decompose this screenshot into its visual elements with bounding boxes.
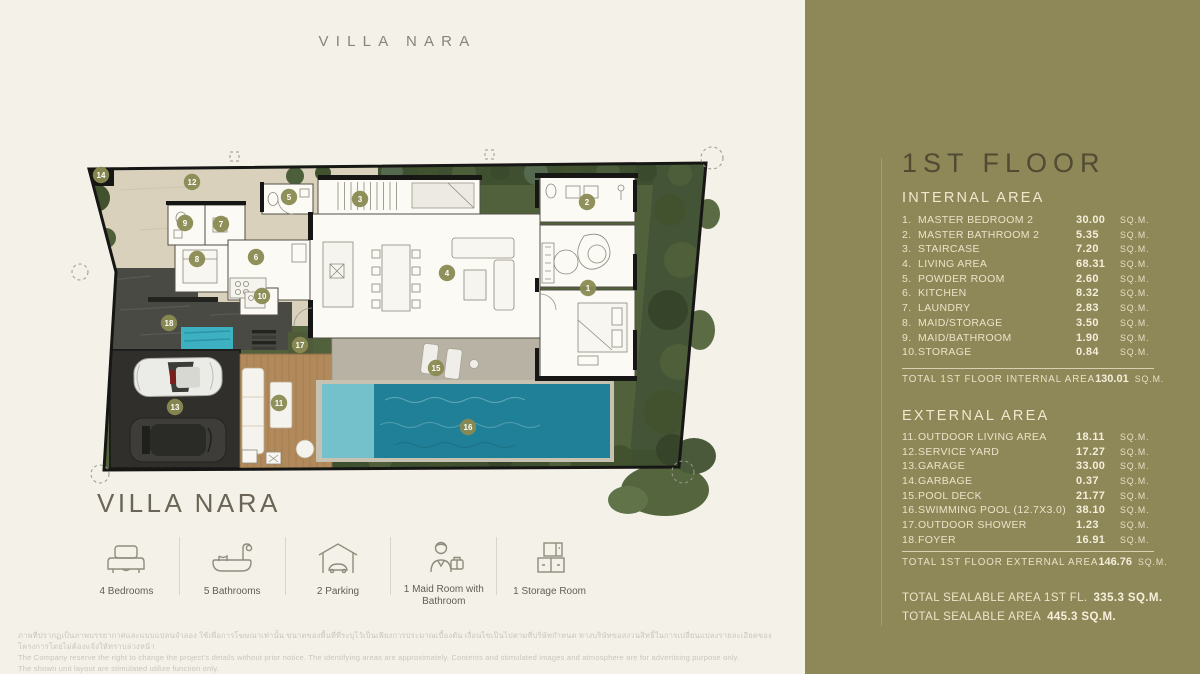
marker-number: 4 bbox=[445, 269, 450, 278]
feature-summary-row: 4 Bedrooms 5 Bathrooms 2 Parking bbox=[74, 533, 602, 605]
disclaimer-text: ภาพที่ปรากฏเป็นภาพบรรยากาศและแบบแปลนจำลอ… bbox=[18, 630, 778, 674]
marker-number: 2 bbox=[585, 198, 590, 207]
marker-number: 10 bbox=[258, 292, 267, 301]
marker-number: 8 bbox=[195, 255, 200, 264]
total-value: 130.01 bbox=[1095, 373, 1129, 385]
marker-number: 7 bbox=[219, 220, 224, 229]
internal-area-list: 1.MASTER BEDROOM 230.00SQ.M.2.MASTER BAT… bbox=[902, 214, 1154, 361]
bath-icon bbox=[209, 539, 255, 579]
floor-plan-illustration: 123456789101112131415161718 bbox=[80, 150, 730, 485]
feature-maid-room: 1 Maid Room with Bathroom bbox=[391, 533, 496, 605]
marker-number: 11 bbox=[275, 399, 284, 408]
white-car bbox=[134, 357, 223, 397]
area-row: 1.MASTER BEDROOM 230.00SQ.M. bbox=[902, 214, 1154, 229]
marker-number: 9 bbox=[183, 219, 188, 228]
marker-number: 16 bbox=[464, 423, 473, 432]
feature-bathrooms: 5 Bathrooms bbox=[180, 533, 285, 605]
area-summary-sidebar: 1ST FLOOR INTERNAL AREA 1.MASTER BEDROOM… bbox=[805, 0, 1200, 674]
feature-label: 5 Bathrooms bbox=[204, 586, 261, 598]
marker-number: 3 bbox=[358, 195, 363, 204]
plan-title: VILLA NARA bbox=[97, 488, 281, 519]
area-row: 7.LAUNDRY2.83SQ.M. bbox=[902, 302, 1154, 317]
area-row: 8.MAID/STORAGE3.50SQ.M. bbox=[902, 317, 1154, 332]
marker-number: 12 bbox=[188, 178, 197, 187]
external-area-heading: EXTERNAL AREA bbox=[902, 408, 1049, 424]
marker-number: 18 bbox=[165, 319, 174, 328]
total-value: 146.76 bbox=[1098, 556, 1132, 568]
area-row: 4.LIVING AREA68.31SQ.M. bbox=[902, 258, 1154, 273]
feature-label: 2 Parking bbox=[317, 586, 359, 598]
total-unit: SQ.M. bbox=[1138, 557, 1167, 567]
area-row: 13.GARAGE33.00SQ.M. bbox=[902, 460, 1154, 475]
total-label: TOTAL 1ST FLOOR INTERNAL AREA bbox=[902, 374, 1095, 385]
feature-label: 1 Storage Room bbox=[513, 586, 586, 598]
total-unit: SQ.M. bbox=[1135, 374, 1164, 384]
vertical-rule bbox=[881, 158, 882, 626]
internal-area-heading: INTERNAL AREA bbox=[902, 190, 1044, 206]
area-row: 6.KITCHEN8.32SQ.M. bbox=[902, 287, 1154, 302]
water-feature bbox=[181, 327, 233, 349]
marker-number: 6 bbox=[254, 253, 259, 262]
bed-icon bbox=[103, 539, 149, 579]
area-row: 14.GARBAGE0.37SQ.M. bbox=[902, 475, 1154, 490]
feature-bedrooms: 4 Bedrooms bbox=[74, 533, 179, 605]
pool-deck bbox=[332, 336, 558, 382]
feature-label: 4 Bedrooms bbox=[99, 586, 153, 598]
marker-number: 1 bbox=[586, 284, 591, 293]
disclaimer-line-english: The Company reserve the right to change … bbox=[18, 652, 778, 663]
area-row: 2.MASTER BATHROOM 25.35SQ.M. bbox=[902, 229, 1154, 244]
feature-parking: 2 Parking bbox=[286, 533, 391, 605]
area-row: 5.POWDER ROOM2.60SQ.M. bbox=[902, 273, 1154, 288]
disclaimer-line-thai: ภาพที่ปรากฏเป็นภาพบรรยากาศและแบบแปลนจำลอ… bbox=[18, 630, 778, 652]
dark-car bbox=[130, 418, 226, 462]
maid-icon bbox=[421, 539, 467, 577]
area-row: 16.SWIMMING POOL (12.7X3.0)38.10SQ.M. bbox=[902, 504, 1154, 519]
internal-total-line: TOTAL 1ST FLOOR INTERNAL AREA 130.01 SQ.… bbox=[902, 368, 1154, 385]
sealable-label: TOTAL SEALABLE AREA bbox=[902, 611, 1041, 623]
floor-title: 1ST FLOOR bbox=[902, 148, 1106, 179]
marker-number: 14 bbox=[97, 171, 106, 180]
marker-number: 13 bbox=[171, 403, 180, 412]
area-row: 11.OUTDOOR LIVING AREA18.11SQ.M. bbox=[902, 431, 1154, 446]
sealable-line: TOTAL SEALABLE AREA 445.3 SQ.M. bbox=[902, 611, 1172, 630]
area-row: 15.POOL DECK21.77SQ.M. bbox=[902, 490, 1154, 505]
sealable-label: TOTAL SEALABLE AREA 1ST FL. bbox=[902, 592, 1088, 604]
parking-icon bbox=[315, 539, 361, 579]
villa-nara-floorplan-page: { "page": { "background": "#f4f1e8", "to… bbox=[0, 0, 1200, 674]
storage-icon bbox=[527, 539, 573, 579]
external-area-list: 11.OUTDOOR LIVING AREA18.11SQ.M.12.SERVI… bbox=[902, 431, 1154, 549]
area-row: 9.MAID/BATHROOM1.90SQ.M. bbox=[902, 332, 1154, 347]
feature-label: 1 Maid Room with Bathroom bbox=[398, 584, 490, 608]
page-title: VILLA NARA bbox=[0, 33, 795, 50]
sealable-value: 445.3 SQ.M. bbox=[1047, 611, 1116, 623]
marker-number: 5 bbox=[287, 193, 292, 202]
area-row: 3.STAIRCASE7.20SQ.M. bbox=[902, 243, 1154, 258]
area-row: 10.STORAGE0.84SQ.M. bbox=[902, 346, 1154, 361]
area-row: 18.FOYER16.91SQ.M. bbox=[902, 534, 1154, 549]
total-label: TOTAL 1ST FLOOR EXTERNAL AREA bbox=[902, 557, 1098, 568]
area-row: 12.SERVICE YARD17.27SQ.M. bbox=[902, 446, 1154, 461]
area-row: 17.OUTDOOR SHOWER1.23SQ.M. bbox=[902, 519, 1154, 534]
marker-number: 17 bbox=[296, 341, 305, 350]
marker-number: 15 bbox=[432, 364, 441, 373]
disclaimer-line-english-2: The shown unit layout are stimulated uti… bbox=[18, 663, 778, 674]
sealable-totals: TOTAL SEALABLE AREA 1ST FL. 335.3 SQ.M. … bbox=[902, 592, 1172, 630]
sealable-value: 335.3 SQ.M. bbox=[1094, 592, 1163, 604]
external-total-line: TOTAL 1ST FLOOR EXTERNAL AREA 146.76 SQ.… bbox=[902, 551, 1154, 568]
feature-storage-room: 1 Storage Room bbox=[497, 533, 602, 605]
sealable-line: TOTAL SEALABLE AREA 1ST FL. 335.3 SQ.M. bbox=[902, 592, 1172, 611]
